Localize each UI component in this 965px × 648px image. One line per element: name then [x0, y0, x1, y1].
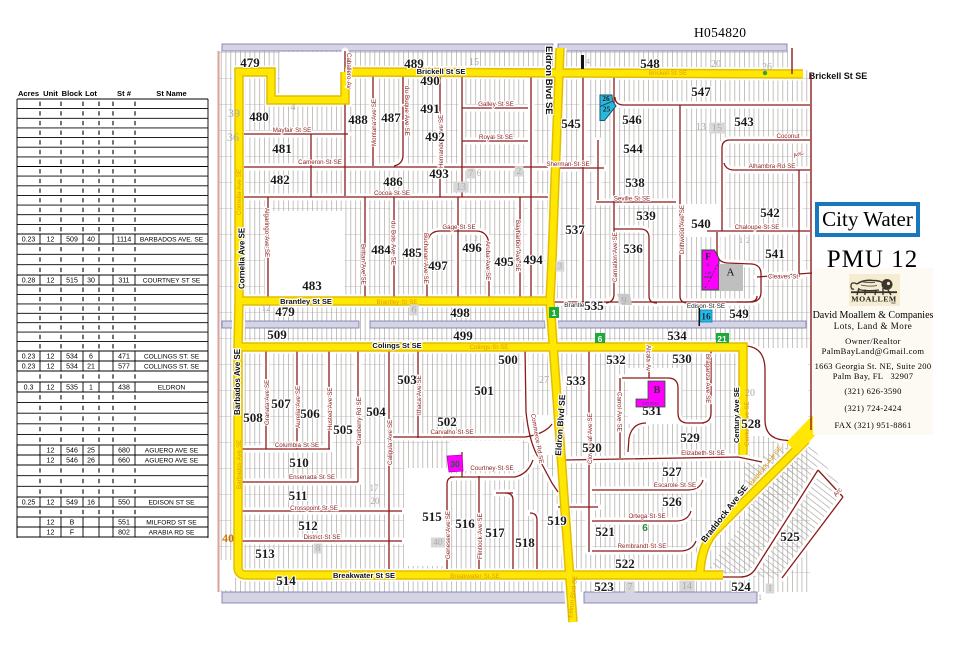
svg-text:6: 6 [598, 334, 603, 344]
svg-text:490: 490 [420, 73, 440, 88]
svg-text:Crosspoint·St·SE: Crosspoint·St·SE [290, 505, 338, 512]
svg-text:498: 498 [450, 305, 470, 320]
svg-text:502: 502 [437, 414, 457, 429]
svg-text:12: 12 [47, 500, 55, 507]
svg-text:21: 21 [717, 334, 727, 344]
svg-text:Genesee·Ave·SE: Genesee·Ave·SE [445, 511, 452, 559]
svg-text:510: 510 [289, 455, 309, 470]
svg-text:542: 542 [760, 205, 780, 220]
svg-text:12: 12 [47, 448, 55, 455]
svg-text:Ensenada·St·SE: Ensenada·St·SE [289, 474, 335, 481]
svg-text:12: 12 [47, 458, 55, 465]
svg-text:486: 486 [383, 174, 403, 189]
svg-text:482: 482 [270, 172, 290, 187]
svg-text:483: 483 [302, 278, 322, 293]
svg-text:B: B [654, 385, 661, 396]
svg-text:545: 545 [561, 116, 581, 131]
svg-text:Algaringo·Ave·SE: Algaringo·Ave·SE [263, 208, 270, 257]
svg-text:21: 21 [87, 364, 95, 371]
svg-text:Seville·St·SE: Seville·St·SE [614, 196, 650, 203]
svg-text:1: 1 [464, 235, 468, 243]
svg-text:INC: INC [891, 302, 896, 305]
svg-text:549: 549 [66, 500, 78, 507]
svg-text:COURTNEY ST SE: COURTNEY ST SE [143, 278, 201, 285]
svg-text:0.23: 0.23 [22, 364, 36, 371]
svg-text:438: 438 [118, 385, 130, 392]
svg-text:Cranberry·Rd·SE: Cranberry·Rd·SE [356, 397, 363, 445]
svg-text:ELDRON: ELDRON [158, 385, 186, 392]
svg-text:1: 1 [768, 583, 773, 593]
svg-text:530: 530 [672, 351, 692, 366]
svg-text:577: 577 [118, 364, 130, 371]
svg-text:509: 509 [66, 237, 78, 244]
svg-text:491: 491 [420, 101, 440, 116]
svg-text:26: 26 [87, 458, 95, 465]
svg-text:Montana·Ave·SE: Montana·Ave·SE [371, 99, 378, 146]
svg-text:A: A [727, 267, 735, 279]
svg-text:550: 550 [118, 500, 130, 507]
svg-text:535: 535 [66, 385, 78, 392]
svg-text:26: 26 [602, 94, 610, 103]
svg-text:ARABIA RD SE: ARABIA RD SE [149, 530, 195, 537]
svg-text:543: 543 [734, 114, 754, 129]
svg-text:517: 517 [485, 525, 505, 540]
svg-text:Block: Block [62, 89, 83, 98]
svg-text:487: 487 [381, 110, 401, 125]
svg-text:660: 660 [118, 458, 130, 465]
svg-text:515: 515 [422, 509, 442, 524]
svg-text:514: 514 [276, 573, 296, 588]
svg-text:518: 518 [515, 535, 535, 550]
svg-text:497: 497 [428, 258, 448, 273]
svg-text:534: 534 [66, 354, 78, 361]
svg-text:Carnation·Ave·SE: Carnation·Ave·SE [612, 232, 619, 282]
svg-text:12: 12 [262, 303, 271, 313]
svg-text:494: 494 [523, 252, 543, 267]
svg-text:Sherman·St·SE: Sherman·St·SE [546, 161, 589, 168]
svg-text:521: 521 [595, 524, 615, 539]
svg-text:Columbia·St·SE: Columbia·St·SE [275, 442, 319, 449]
svg-text:14: 14 [682, 581, 692, 592]
svg-text:2: 2 [517, 166, 522, 176]
svg-text:6: 6 [89, 354, 93, 361]
svg-text:12: 12 [47, 364, 55, 371]
svg-text:MOALLEM: MOALLEM [851, 295, 897, 304]
svg-text:Galley·St·SE: Galley·St·SE [478, 101, 514, 108]
svg-text:12: 12 [47, 354, 55, 361]
svg-text:526: 526 [662, 494, 682, 509]
svg-text:546: 546 [66, 448, 78, 455]
svg-text:499: 499 [453, 328, 473, 343]
svg-text:AGUERO AVE SE: AGUERO AVE SE [145, 448, 199, 455]
svg-text:541: 541 [765, 246, 785, 261]
svg-text:1114: 1114 [117, 237, 132, 244]
svg-text:6: 6 [477, 168, 482, 178]
svg-text:Brickell St SE: Brickell St SE [809, 71, 868, 81]
svg-text:Edison·St·SE: Edison·St·SE [687, 303, 725, 310]
svg-text:36: 36 [227, 130, 239, 144]
svg-text:20: 20 [745, 388, 755, 399]
svg-text:15: 15 [712, 123, 722, 134]
svg-text:Cornelia Ave SE: Cornelia Ave SE [238, 227, 247, 289]
svg-text:546: 546 [622, 112, 642, 127]
svg-text:St #: St # [117, 89, 132, 98]
svg-text:0.23: 0.23 [22, 354, 36, 361]
svg-text:4: 4 [291, 102, 296, 113]
svg-text:9: 9 [622, 296, 627, 307]
svg-text:40: 40 [222, 531, 234, 545]
svg-text:25: 25 [603, 105, 611, 114]
svg-text:520: 520 [582, 440, 602, 455]
svg-text:519: 519 [547, 513, 567, 528]
svg-text:509: 509 [267, 327, 287, 342]
svg-text:Alcala·Av: Alcala·Av [645, 345, 652, 372]
svg-text:471: 471 [118, 354, 130, 361]
svg-text:Mayfair·St·SE: Mayfair·St·SE [273, 127, 312, 134]
svg-text:479: 479 [240, 55, 260, 70]
svg-text:Breakwater St SE: Breakwater St SE [333, 571, 395, 580]
svg-text:St Name: St Name [156, 89, 186, 98]
svg-text:Colings·St·SE: Colings·St·SE [470, 344, 509, 351]
svg-text:acres: acres [704, 275, 713, 279]
svg-text:17: 17 [370, 483, 380, 493]
svg-text:12: 12 [47, 530, 55, 537]
svg-text:527: 527 [662, 464, 682, 479]
svg-text:Barbados·Ave·SE: Barbados·Ave·SE [236, 440, 243, 489]
svg-text:Acres: Acres [18, 89, 39, 98]
svg-text:AGUERO AVE SE: AGUERO AVE SE [145, 458, 199, 465]
svg-text:F: F [70, 530, 74, 537]
svg-text:Royal·St·SE: Royal·St·SE [479, 134, 513, 141]
svg-text:Coconut: Coconut [776, 133, 799, 140]
svg-text:549: 549 [729, 306, 749, 321]
svg-text:Cloverleaf·Ave·SE: Cloverleaf·Ave·SE [587, 413, 594, 464]
svg-text:40: 40 [87, 237, 95, 244]
svg-text:484: 484 [371, 242, 391, 257]
svg-text:480: 480 [249, 109, 269, 124]
svg-text:0.28: 0.28 [22, 278, 36, 285]
svg-text:2: 2 [474, 235, 478, 243]
svg-text:30: 30 [450, 459, 460, 469]
svg-text:Escarole·St·SE: Escarole·St·SE [654, 482, 696, 489]
svg-text:513: 513 [255, 546, 275, 561]
svg-text:Ortega·St·SE: Ortega·St·SE [628, 513, 665, 520]
svg-text:1: 1 [758, 593, 762, 602]
svg-text:27: 27 [539, 375, 549, 386]
svg-text:544: 544 [623, 141, 643, 156]
svg-text:Century Ave SE: Century Ave SE [732, 387, 741, 443]
svg-text:505: 505 [333, 422, 353, 437]
svg-text:481: 481 [272, 141, 292, 156]
svg-text:2: 2 [746, 236, 750, 245]
svg-text:4: 4 [586, 57, 590, 66]
svg-text:13: 13 [456, 182, 466, 193]
svg-text:0.25 Acres: 0.25 Acres [642, 402, 658, 406]
svg-text:523: 523 [594, 579, 614, 594]
svg-text:7: 7 [469, 168, 474, 178]
svg-text:522: 522 [615, 556, 635, 571]
svg-text:528: 528 [741, 416, 761, 431]
svg-text:13: 13 [696, 122, 706, 133]
svg-text:529: 529 [680, 430, 700, 445]
svg-text:16: 16 [87, 500, 95, 507]
svg-text:802: 802 [118, 530, 130, 537]
svg-text:524: 524 [731, 579, 751, 594]
svg-text:508: 508 [243, 410, 263, 425]
svg-text:Eldron Blvd SE: Eldron Blvd SE [543, 46, 554, 115]
svg-text:0.3: 0.3 [24, 385, 34, 392]
svg-text:538: 538 [625, 175, 645, 190]
svg-text:12: 12 [47, 385, 55, 392]
svg-text:40: 40 [434, 537, 444, 547]
svg-text:Bayharbor·Ave·SE: Bayharbor·Ave·SE [514, 220, 521, 271]
svg-text:516: 516 [455, 516, 475, 531]
svg-text:540: 540 [691, 216, 711, 231]
svg-text:Caballero·Av: Caballero·Av [345, 53, 352, 90]
svg-text:39: 39 [228, 106, 240, 120]
svg-text:Granata·Ave·SE: Granata·Ave·SE [264, 380, 271, 425]
svg-text:Gage·St·SE: Gage·St·SE [442, 224, 475, 231]
svg-text:495: 495 [494, 254, 514, 269]
svg-text:F: F [705, 252, 711, 262]
svg-text:Driftwood·Ave·SE: Driftwood·Ave·SE [679, 205, 686, 254]
svg-text:Courtney·St·SE: Courtney·St·SE [470, 465, 513, 472]
svg-text:20: 20 [711, 59, 721, 70]
svg-text:MILFORD ST SE: MILFORD ST SE [146, 520, 197, 527]
svg-text:Cocoa·St·SE: Cocoa·St·SE [374, 190, 410, 197]
svg-text:492: 492 [425, 129, 445, 144]
svg-text:6: 6 [412, 305, 417, 316]
svg-text:311: 311 [118, 278, 129, 285]
svg-text:Chaloupe·St·SE: Chaloupe·St·SE [735, 224, 780, 231]
svg-text:Brittan·Ave·SE: Brittan·Ave·SE [360, 244, 367, 285]
svg-text:Barbados Ave SE: Barbados Ave SE [233, 348, 242, 415]
svg-text:501: 501 [474, 383, 494, 398]
svg-text:539: 539 [636, 208, 656, 223]
svg-text:Alhambra·Rd·SE: Alhambra·Rd·SE [749, 163, 796, 170]
svg-text:489: 489 [404, 56, 424, 71]
svg-text:680: 680 [118, 448, 130, 455]
svg-text:485: 485 [402, 245, 422, 260]
svg-text:30: 30 [87, 278, 95, 285]
svg-text:Colings St SE: Colings St SE [372, 341, 421, 350]
svg-text:Ithaca·Ave·SE: Ithaca·Ave·SE [416, 375, 423, 415]
svg-text:Carvalho·St·SE: Carvalho·St·SE [431, 429, 474, 436]
svg-text:Flintlock·Ave·SE: Flintlock·Ave·SE [477, 513, 484, 559]
svg-text:1: 1 [89, 385, 93, 392]
svg-text:12: 12 [47, 278, 55, 285]
svg-text:537: 537 [565, 222, 585, 237]
svg-text:535: 535 [584, 298, 604, 313]
svg-text:Elizabeth·St·SE: Elizabeth·St·SE [681, 450, 725, 457]
svg-text:Rembrandt·St·SE: Rembrandt·St·SE [618, 543, 667, 550]
svg-text:512: 512 [298, 518, 318, 533]
svg-text:504: 504 [366, 404, 386, 419]
svg-text:26: 26 [762, 62, 772, 73]
svg-text:536: 536 [623, 241, 643, 256]
svg-text:511: 511 [289, 488, 308, 503]
svg-text:16: 16 [701, 313, 711, 323]
svg-text:548: 548 [640, 56, 660, 71]
svg-text:B: B [70, 520, 75, 527]
svg-text:Braganza·Ave·SE: Braganza·Ave·SE [704, 354, 711, 403]
svg-text:547: 547 [691, 84, 711, 99]
svg-text:506: 506 [300, 406, 320, 421]
svg-text:6: 6 [642, 523, 648, 534]
svg-text:507: 507 [271, 396, 291, 411]
svg-text:Cameron·St·SE: Cameron·St·SE [298, 159, 342, 166]
svg-text:EDISON ST SE: EDISON ST SE [148, 500, 195, 507]
svg-text:534: 534 [667, 328, 687, 343]
svg-text:515: 515 [66, 278, 78, 285]
svg-text:12: 12 [47, 520, 55, 527]
svg-text:Lot: Lot [85, 89, 97, 98]
svg-text:Cleaves·St: Cleaves·St [768, 274, 799, 281]
svg-text:8: 8 [316, 543, 321, 553]
svg-text:3: 3 [558, 261, 563, 271]
svg-text:1: 1 [552, 308, 557, 318]
svg-text:Brickell·St·SE: Brickell·St·SE [649, 70, 687, 77]
svg-text:503: 503 [397, 372, 417, 387]
svg-text:533: 533 [566, 373, 586, 388]
svg-text:532: 532 [606, 352, 626, 367]
svg-text:0.25: 0.25 [22, 500, 36, 507]
svg-text:488: 488 [348, 112, 368, 127]
svg-text:25: 25 [87, 448, 95, 455]
svg-text:546: 546 [66, 458, 78, 465]
svg-text:479: 479 [275, 304, 295, 319]
svg-text:Caligula·Ave·SE: Caligula·Ave·SE [387, 420, 394, 465]
svg-text:525: 525 [780, 529, 800, 544]
svg-text:Unit: Unit [43, 89, 58, 98]
svg-text:COLLINGS ST. SE: COLLINGS ST. SE [144, 364, 200, 371]
svg-text:500: 500 [498, 352, 518, 367]
svg-text:COLLINGS ST. SE: COLLINGS ST. SE [144, 354, 200, 361]
svg-text:Breakwater·St·SE: Breakwater·St·SE [450, 573, 500, 580]
svg-text:551: 551 [118, 520, 130, 527]
svg-text:District·St·SE: District·St·SE [303, 534, 340, 541]
svg-text:1: 1 [739, 236, 743, 245]
svg-text:BARBADOS AVE. SE: BARBADOS AVE. SE [140, 237, 204, 244]
svg-text:20: 20 [371, 496, 381, 506]
svg-text:12: 12 [47, 237, 55, 244]
svg-text:7: 7 [628, 582, 633, 593]
svg-text:du·Buque·Ave·SE: du·Buque·Ave·SE [403, 86, 410, 136]
svg-text:15: 15 [469, 57, 479, 68]
svg-text:Carrol·Ave·SE: Carrol·Ave·SE [616, 392, 623, 432]
svg-text:Aruba·Ave·SE: Aruba·Ave·SE [484, 241, 491, 280]
svg-text:534: 534 [66, 364, 78, 371]
svg-text:30: 30 [706, 263, 710, 267]
svg-text:0.23: 0.23 [22, 237, 36, 244]
svg-text:493: 493 [429, 166, 449, 181]
svg-text:Cornelia·Ave·SE: Cornelia·Ave·SE [236, 169, 243, 215]
